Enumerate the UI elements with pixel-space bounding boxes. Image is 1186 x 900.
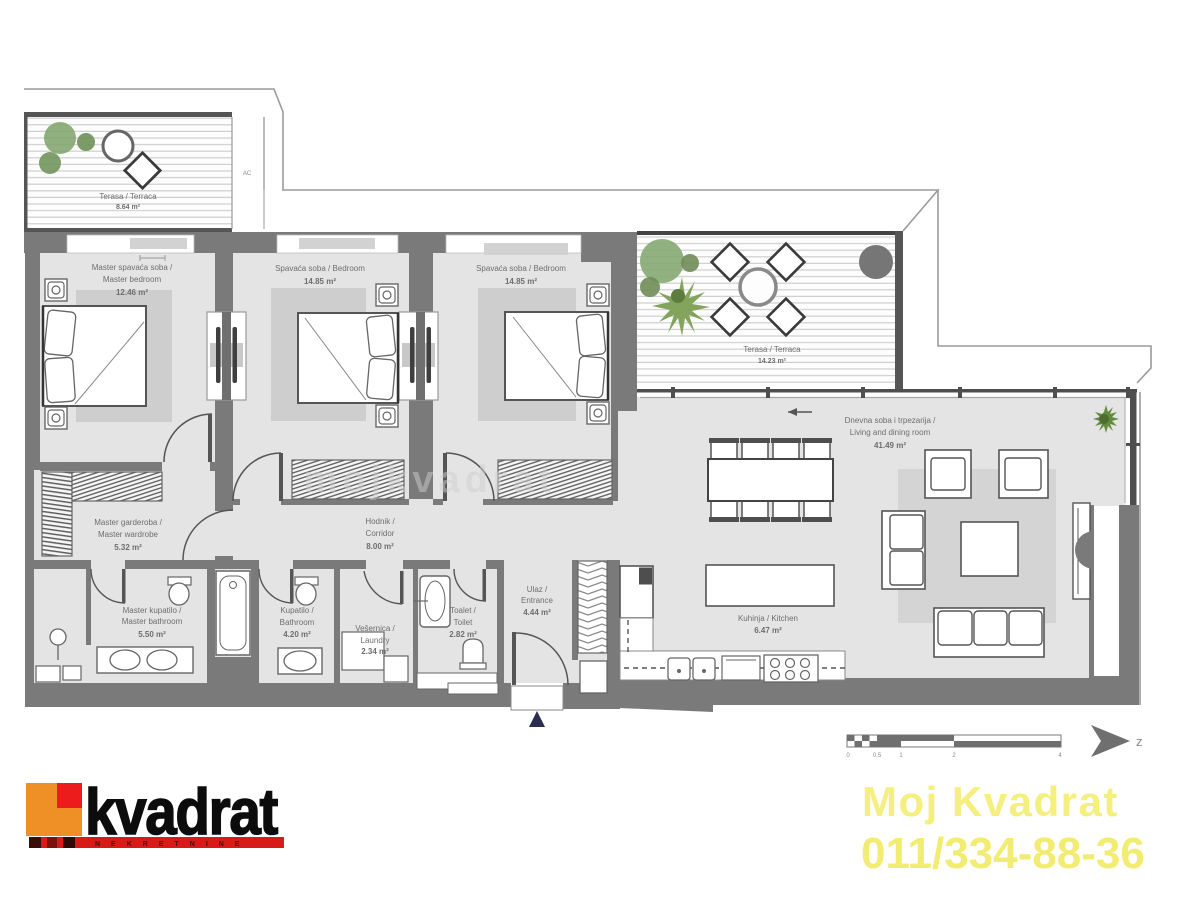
svg-text:Toilet: Toilet xyxy=(454,618,473,627)
svg-text:Hodnik /: Hodnik / xyxy=(365,517,395,526)
svg-text:0.5: 0.5 xyxy=(873,753,882,759)
svg-text:Spavaća soba / Bedroom: Spavaća soba / Bedroom xyxy=(275,264,365,273)
svg-text:14.85 m²: 14.85 m² xyxy=(505,277,537,286)
svg-text:Dnevna soba i trpezarija /: Dnevna soba i trpezarija / xyxy=(845,416,936,425)
svg-text:4.44 m²: 4.44 m² xyxy=(523,608,551,617)
svg-text:Master bedroom: Master bedroom xyxy=(103,275,162,284)
svg-text:5.32 m²: 5.32 m² xyxy=(114,543,142,552)
svg-text:Toalet /: Toalet / xyxy=(450,606,477,615)
svg-text:Corridor: Corridor xyxy=(366,529,395,538)
svg-text:Kupatilo /: Kupatilo / xyxy=(280,606,314,615)
svg-text:Living and dining room: Living and dining room xyxy=(850,428,931,437)
svg-text:Moj Kvadrat: Moj Kvadrat xyxy=(862,778,1119,825)
svg-text:4.20 m²: 4.20 m² xyxy=(283,630,311,639)
svg-text:011/334-88-36: 011/334-88-36 xyxy=(861,829,1145,878)
svg-text:Terasa / Terraca: Terasa / Terraca xyxy=(743,345,801,354)
svg-text:8.64 m²: 8.64 m² xyxy=(116,204,141,211)
svg-text:14.85 m²: 14.85 m² xyxy=(304,277,336,286)
svg-text:6.47 m²: 6.47 m² xyxy=(754,626,782,635)
svg-text:Entrance: Entrance xyxy=(521,596,554,605)
svg-text:Master kupatilo /: Master kupatilo / xyxy=(123,606,182,615)
svg-text:4: 4 xyxy=(1058,753,1062,759)
svg-text:2.82 m²: 2.82 m² xyxy=(449,630,477,639)
svg-text:Terasa / Terraca: Terasa / Terraca xyxy=(99,192,157,201)
svg-text:8.00 m²: 8.00 m² xyxy=(366,542,394,551)
svg-text:Master garderoba /: Master garderoba / xyxy=(94,518,162,527)
svg-text:2: 2 xyxy=(952,753,956,759)
svg-text:Master bathroom: Master bathroom xyxy=(122,617,183,626)
svg-text:2.34 m²: 2.34 m² xyxy=(361,647,389,656)
svg-text:Bathroom: Bathroom xyxy=(280,618,315,627)
svg-text:Vešernica /: Vešernica / xyxy=(355,624,395,633)
svg-text:AC: AC xyxy=(243,171,252,177)
svg-text:kvadrat: kvadrat xyxy=(85,775,278,848)
svg-text:Master wardrobe: Master wardrobe xyxy=(98,530,159,539)
svg-text:Laundry: Laundry xyxy=(361,636,390,645)
svg-text:1: 1 xyxy=(899,753,903,759)
svg-text:12.46 m²: 12.46 m² xyxy=(116,288,148,297)
svg-text:0: 0 xyxy=(846,753,850,759)
svg-text:NEKRETNINE: NEKRETNINE xyxy=(95,841,251,848)
svg-text:5.50 m²: 5.50 m² xyxy=(138,630,166,639)
svg-text:mojkvadrat: mojkvadrat xyxy=(304,459,557,501)
svg-text:14.23 m²: 14.23 m² xyxy=(758,358,787,365)
svg-text:Ulaz /: Ulaz / xyxy=(527,585,548,594)
svg-text:41.49 m²: 41.49 m² xyxy=(874,441,906,450)
svg-text:Master spavaća soba /: Master spavaća soba / xyxy=(92,263,173,272)
svg-text:Kuhinja / Kitchen: Kuhinja / Kitchen xyxy=(738,614,798,623)
svg-text:Spavaća soba / Bedroom: Spavaća soba / Bedroom xyxy=(476,264,566,273)
svg-text:z: z xyxy=(1136,734,1143,749)
